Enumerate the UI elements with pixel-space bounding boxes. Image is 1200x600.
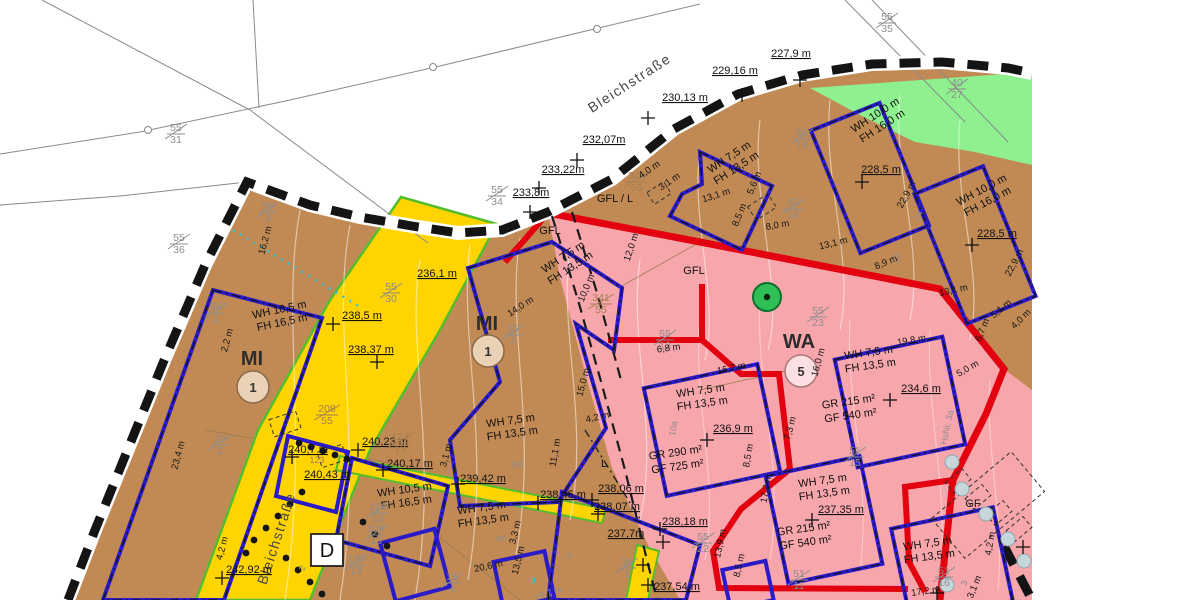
- elevation-label: 228,5 m: [977, 228, 1017, 240]
- elevation-label: 240,43 m: [304, 469, 350, 481]
- elevation-label: 239,42 m: [460, 473, 506, 485]
- svg-text:10: 10: [214, 433, 226, 445]
- svg-text:55: 55: [173, 232, 185, 244]
- elevation-label: 233,22m: [542, 164, 585, 176]
- elevation-label: 237,7m: [608, 528, 645, 540]
- svg-text:51: 51: [938, 565, 950, 577]
- svg-text:56: 56: [262, 200, 274, 212]
- existing-tree-icon: [945, 455, 959, 469]
- elevation-label: 237,35 m: [818, 504, 864, 516]
- existing-tree-icon: [1017, 554, 1031, 568]
- svg-text:130: 130: [347, 553, 365, 565]
- small-id: 123: [309, 455, 324, 465]
- svg-text:11: 11: [794, 580, 805, 592]
- elevation-label: 238,37 m: [348, 344, 394, 356]
- svg-text:40: 40: [951, 77, 963, 89]
- tree-center-dot: [764, 294, 770, 300]
- svg-text:2: 2: [217, 445, 223, 457]
- survey-node: [145, 127, 152, 134]
- elevation-label: 229,16 m: [712, 65, 758, 77]
- svg-text:36: 36: [173, 244, 185, 256]
- elevation-label: 234,6 m: [901, 383, 941, 395]
- zone-label-mi: MI: [476, 313, 498, 335]
- svg-text:16: 16: [787, 209, 799, 221]
- l-label: L: [601, 458, 607, 470]
- svg-text:55: 55: [881, 11, 893, 23]
- svg-text:2: 2: [510, 335, 516, 347]
- elevation-label: 238,45 m: [540, 489, 586, 501]
- svg-text:55: 55: [170, 122, 182, 134]
- svg-text:3: 3: [265, 212, 271, 224]
- existing-tree-icon: [1001, 532, 1015, 546]
- zone-label-wa: WA: [783, 331, 815, 353]
- elevation-label: 227,9 m: [771, 48, 811, 60]
- zone-number: 1: [484, 344, 491, 359]
- elevation-label: 233,8m: [513, 187, 550, 199]
- svg-text:1: 1: [624, 568, 630, 580]
- svg-text:31: 31: [170, 134, 182, 146]
- existing-tree-icon: [979, 507, 993, 521]
- svg-text:55: 55: [631, 182, 643, 194]
- svg-text:23: 23: [812, 317, 824, 329]
- elevation-label: 236,9 m: [713, 423, 753, 435]
- svg-text:1: 1: [213, 313, 219, 325]
- gf-label: GF: [965, 498, 981, 510]
- svg-text:16: 16: [938, 577, 950, 589]
- svg-text:35: 35: [881, 23, 893, 35]
- svg-text:55: 55: [321, 415, 333, 427]
- svg-text:55: 55: [385, 281, 397, 293]
- svg-text:126: 126: [369, 501, 387, 513]
- zone-label-mi: MI: [241, 348, 263, 370]
- svg-text:18: 18: [796, 139, 808, 151]
- survey-node: [594, 26, 601, 33]
- elevation-label: 238,18 m: [662, 516, 708, 528]
- svg-text:55: 55: [595, 304, 607, 316]
- svg-text:34: 34: [491, 196, 503, 208]
- small-id: 9: [530, 576, 535, 586]
- elevation-label: 242,92 m: [226, 564, 272, 576]
- svg-text:13: 13: [350, 565, 362, 577]
- svg-text:56: 56: [210, 301, 222, 313]
- d-section-label: D: [320, 540, 334, 562]
- elevation-label: 240,17 m: [387, 458, 433, 470]
- svg-text:13: 13: [370, 535, 382, 547]
- svg-text:55: 55: [787, 197, 799, 209]
- svg-text:27: 27: [951, 89, 963, 101]
- svg-text:15: 15: [446, 571, 458, 583]
- elevation-label: 238,07 m: [594, 501, 640, 513]
- svg-text:51: 51: [793, 568, 805, 580]
- svg-text:55: 55: [812, 305, 824, 317]
- elevation-label: 230,13 m: [662, 92, 708, 104]
- svg-text:22: 22: [697, 543, 709, 555]
- elevation-label: 238,5 m: [342, 310, 382, 322]
- svg-text:55: 55: [796, 127, 808, 139]
- svg-text:4: 4: [449, 583, 455, 595]
- elevation-label: 238,06 m: [598, 483, 644, 495]
- map-svg: Bleichstraße Bleichstraße MI 1 MI 1 WA 5…: [0, 0, 1200, 600]
- zoning-plan-map[interactable]: Bleichstraße Bleichstraße MI 1 MI 1 WA 5…: [0, 0, 1200, 600]
- elevation-label: 236,1 m: [417, 268, 457, 280]
- elevation-label: 228,5 m: [861, 164, 901, 176]
- svg-text:129: 129: [367, 523, 385, 535]
- svg-text:51: 51: [849, 445, 861, 457]
- svg-text:55: 55: [507, 323, 519, 335]
- gfl-l-label: GFL / L: [597, 193, 633, 205]
- svg-text:16: 16: [621, 556, 633, 568]
- zone-number: 5: [797, 364, 804, 379]
- gfl-label: GFL: [683, 265, 704, 277]
- survey-node: [430, 64, 437, 71]
- svg-text:55: 55: [697, 531, 709, 543]
- gfl-label: GFL: [539, 225, 560, 237]
- existing-tree-icon: [955, 482, 969, 496]
- zone-number: 1: [249, 380, 256, 395]
- svg-text:13: 13: [394, 443, 406, 455]
- elevation-label: 232,07m: [583, 134, 626, 146]
- svg-text:30: 30: [385, 293, 397, 305]
- elevation-label: 237,54 m: [654, 581, 700, 593]
- svg-text:55: 55: [491, 184, 503, 196]
- svg-text:55: 55: [659, 328, 671, 340]
- svg-text:15: 15: [849, 457, 861, 469]
